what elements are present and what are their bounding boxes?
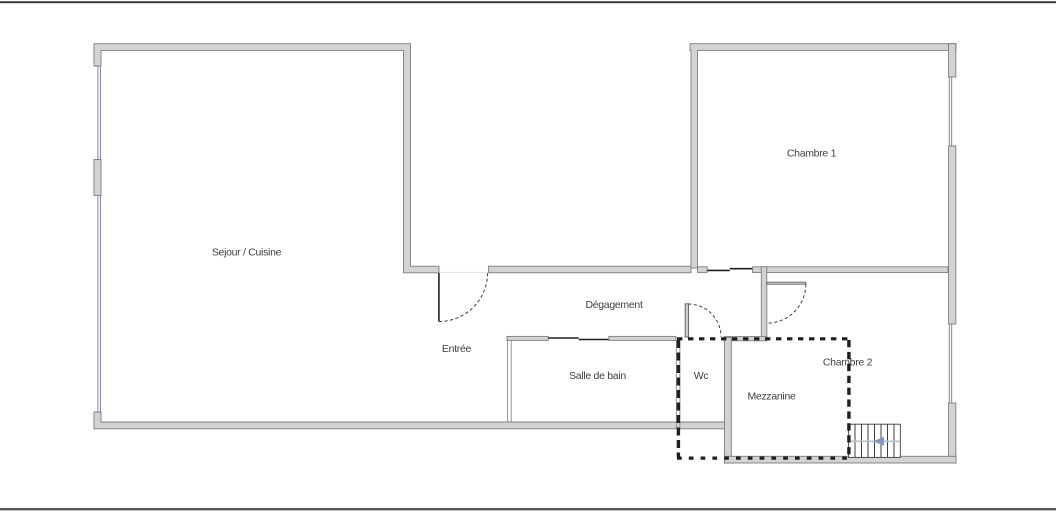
svg-text:Salle de bain: Salle de bain xyxy=(569,370,626,382)
svg-text:Wc: Wc xyxy=(694,370,709,382)
svg-text:Mezzanine: Mezzanine xyxy=(747,391,796,403)
svg-text:Dégagement: Dégagement xyxy=(585,299,643,311)
svg-text:Entrée: Entrée xyxy=(442,343,472,355)
svg-text:Sejour / Cuisine: Sejour / Cuisine xyxy=(212,247,282,259)
svg-text:Chambre 1: Chambre 1 xyxy=(787,148,837,160)
